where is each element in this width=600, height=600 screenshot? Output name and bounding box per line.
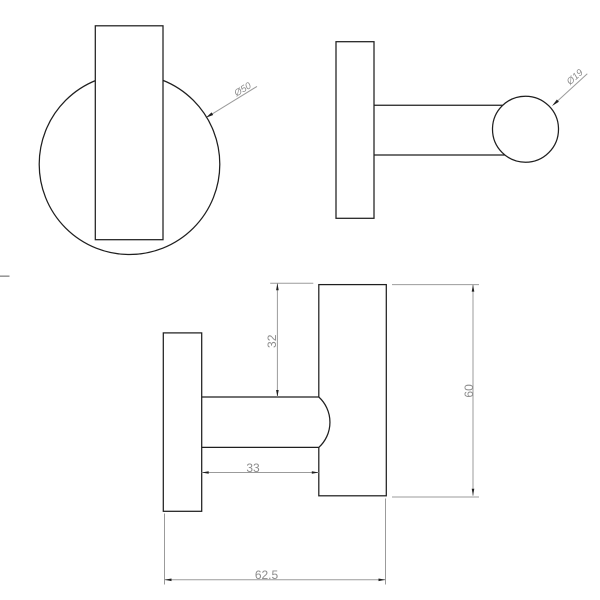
svg-text:60: 60 xyxy=(462,384,476,398)
svg-text:33: 33 xyxy=(246,461,260,475)
svg-text:62.5: 62.5 xyxy=(255,568,279,582)
svg-text:32: 32 xyxy=(265,334,279,348)
